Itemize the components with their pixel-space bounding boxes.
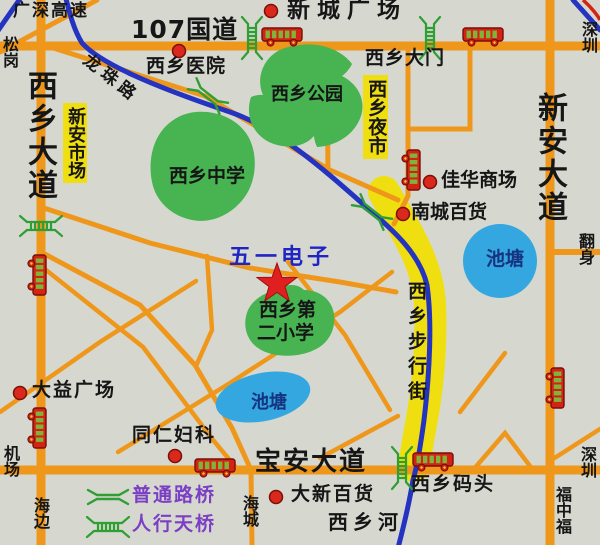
place-label-xinan-market: 新安市场: [63, 103, 87, 183]
road-label-g107: 107国道: [131, 17, 238, 42]
place-label-daxin-store: 大新百货: [291, 485, 375, 504]
pond-label-bottom: 池塘: [251, 394, 287, 412]
edge-label-fuzhongfu: 福中福: [554, 486, 570, 534]
place-label-tongren-clinic: 同仁妇科: [132, 426, 216, 445]
park-label-middle-school: 西乡中学: [169, 167, 245, 186]
road-label-xixiang-gate: 西乡大门: [365, 49, 445, 68]
road-label-guangshen-expressway: 广深高速: [13, 3, 89, 20]
road-label-baoan-avenue: 宝安大道: [255, 449, 367, 475]
city-map: 广深高速 107国道 松岗 西乡大道 新安大道 深圳 新城广场 西乡医院 龙珠路…: [0, 0, 600, 545]
place-label-nancheng-store: 南城百货: [411, 203, 487, 222]
edge-label-haicheng: 海城: [241, 495, 257, 527]
place-label-dayi-plaza: 大益广场: [32, 381, 116, 400]
place-label-xixiang-wharf: 西乡码头: [411, 475, 495, 494]
edge-label-airport: 机场: [2, 445, 18, 477]
place-label-jiahua-mall: 佳华商场: [441, 171, 517, 190]
legend-label-footbridge: 人行天桥: [132, 515, 216, 534]
place-label-xincheng-plaza: 新城广场: [287, 0, 407, 22]
road-label-xixiang-river: 西乡河: [328, 512, 403, 532]
park-label-second-primary-1: 西乡第: [259, 301, 316, 320]
pond-label-right: 池塘: [486, 250, 524, 269]
place-label-wuyi-electronics: 五一电子: [229, 247, 333, 269]
place-label-xixiang-night-market: 西乡夜市: [363, 75, 388, 159]
road-label-xinan-avenue: 新安大道: [534, 92, 564, 224]
road-label-pedestrian-street: 西乡步行街: [406, 281, 425, 406]
place-label-xixiang-hospital: 西乡医院: [146, 57, 226, 76]
edge-label-haibian: 海边: [32, 497, 48, 529]
legend-label-road-bridge: 普通路桥: [132, 486, 216, 505]
edge-label-fanshen: 翻身: [577, 233, 593, 265]
park-label-second-primary-2: 二小学: [257, 324, 314, 343]
park-label-xixiang-park: 西乡公园: [271, 86, 343, 104]
edge-label-shenzhen-top: 深圳: [580, 21, 596, 53]
road-label-xixiang-avenue: 西乡大道: [24, 70, 54, 202]
edge-label-shenzhen-bottom: 深圳: [579, 446, 595, 478]
edge-label-songgang: 松岗: [1, 36, 17, 68]
